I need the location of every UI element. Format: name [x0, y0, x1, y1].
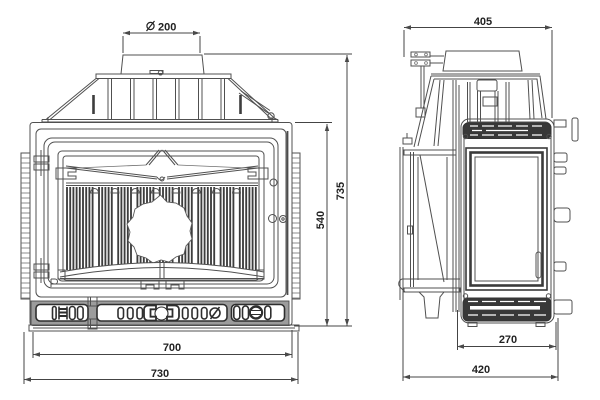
svg-text:405: 405 [474, 16, 492, 28]
svg-text:200: 200 [158, 22, 176, 34]
svg-text:540: 540 [315, 211, 327, 229]
svg-text:270: 270 [499, 334, 517, 346]
svg-text:700: 700 [163, 342, 181, 354]
svg-text:730: 730 [151, 368, 169, 380]
svg-text:735: 735 [335, 182, 347, 200]
svg-text:420: 420 [472, 364, 490, 376]
